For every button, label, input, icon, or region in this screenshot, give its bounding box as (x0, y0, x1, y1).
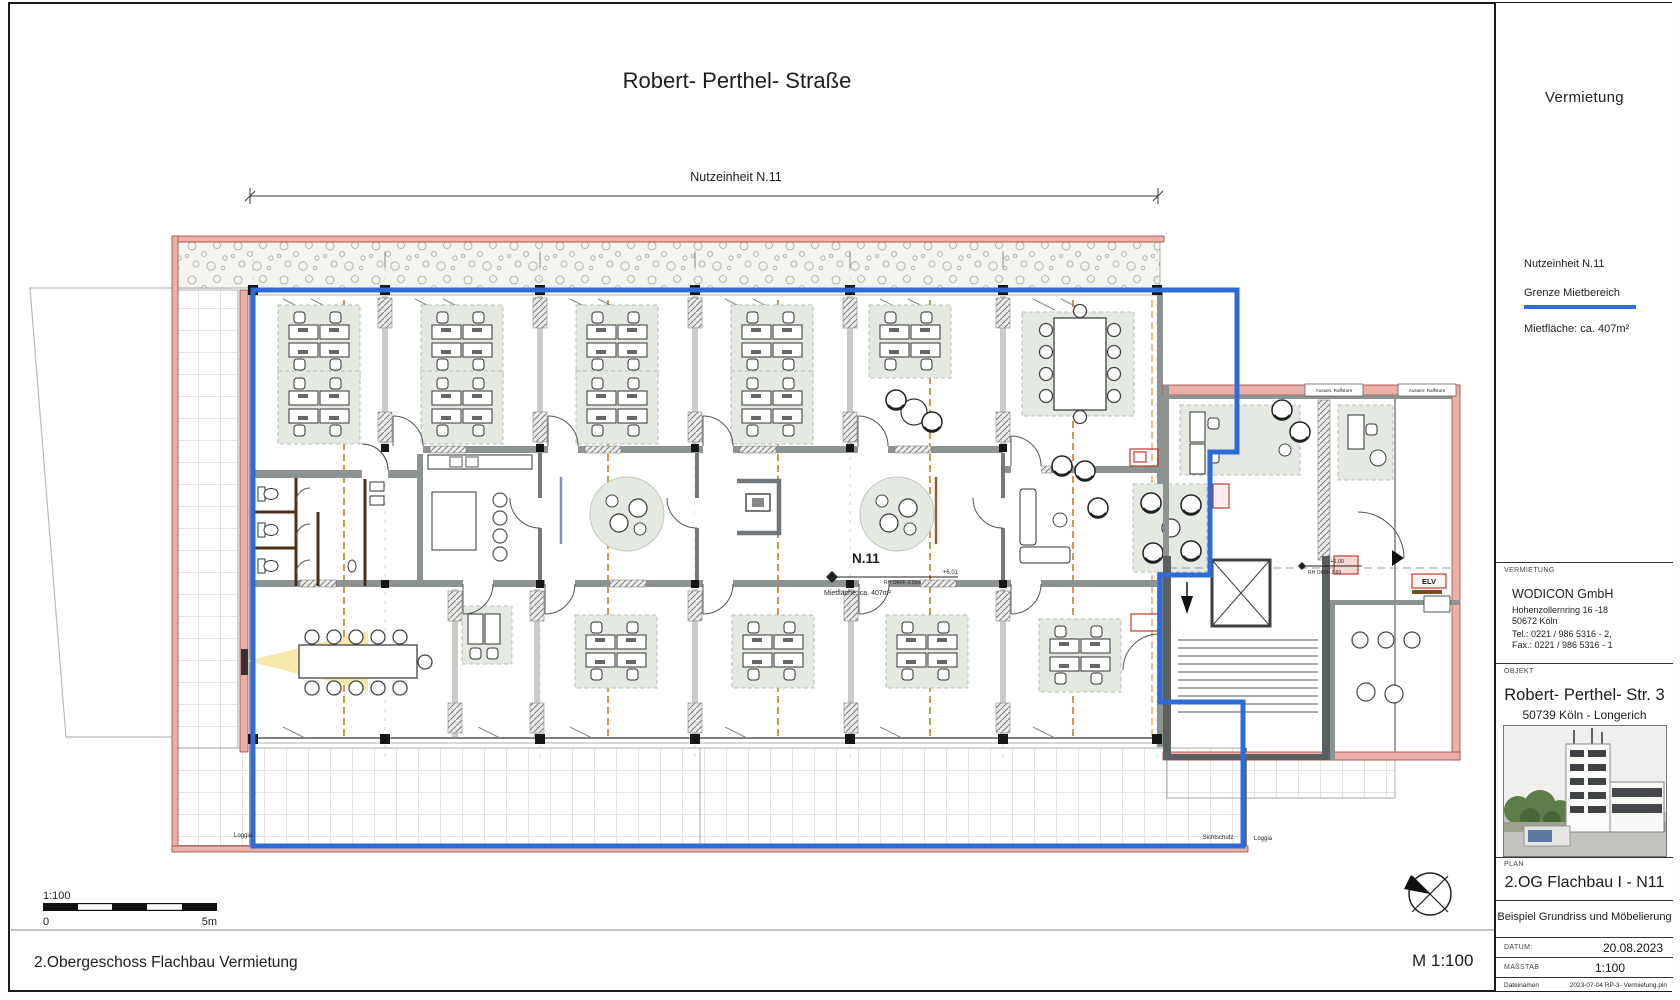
legend-boundary: Grenze Mietbereich (1524, 287, 1620, 299)
plan-subtitle: Beispiel Grundriss und Möbelierung (1496, 911, 1673, 923)
drawing-sheet: Robert- Perthel- Straße Nutzeinheit N.11… (0, 0, 1680, 1000)
building-render-graphic (1504, 726, 1666, 856)
dimension-label: Nutzeinheit N.11 (690, 170, 782, 184)
scalebar-ratio: 1:100 (43, 890, 71, 902)
divider (1496, 977, 1673, 978)
file-label: Dateinamen (1504, 982, 1539, 989)
objekt-city: 50739 Köln - Longerich (1496, 708, 1673, 722)
area-note: Mietfläche: ca. 407m² (824, 590, 892, 597)
loggia-left-label: Loggia (234, 833, 253, 839)
legend-area: Mietfläche: ca. 407m² (1524, 323, 1629, 335)
scale-bar (43, 903, 217, 911)
stair-elevation-value: +6,00 (1330, 559, 1344, 565)
divider (1496, 562, 1673, 563)
title-block: Vermietung Nutzeinheit N.11 Grenze Mietb… (1494, 3, 1673, 991)
date-label: DATUM: (1504, 944, 1533, 951)
plan-name: 2.OG Flachbau I - N11 (1496, 874, 1673, 892)
floor-plan-canvas: Robert- Perthel- Straße Nutzeinheit N.11… (0, 0, 1680, 1000)
vermietung-company: WODICON GmbH (1512, 587, 1613, 601)
objekt-name: Robert- Perthel- Str. 3 (1496, 686, 1673, 705)
street-title: Robert- Perthel- Straße (623, 68, 852, 93)
objekt-section-label: OBJEKT (1504, 668, 1534, 675)
vermietung-tel: Tel.: 0221 / 986 5316 - 2, (1512, 629, 1612, 639)
titleblock-header: Vermietung (1496, 89, 1673, 106)
scale-label: MAßSTAB (1504, 964, 1539, 971)
scale-value: 1:100 (1595, 961, 1625, 975)
scalebar-start: 0 (43, 916, 49, 928)
legend-boundary-line (1524, 305, 1636, 309)
file-value: 2023-07-04 RP-3- Vermietung.pln (1570, 982, 1667, 989)
divider (1496, 663, 1673, 664)
plan-section-label: PLAN (1504, 861, 1524, 868)
divider (1496, 900, 1673, 901)
stair-elevation-sub: RH OKFF 2,69 (1308, 570, 1341, 576)
raffstore-label-1: Aussen. Raffstore (1316, 388, 1353, 393)
loggia-right-label: Loggia (1254, 836, 1273, 842)
divider (1496, 937, 1673, 938)
gravel-strip (176, 242, 1160, 288)
vermietung-city: 50672 Köln (1512, 616, 1558, 626)
elv-label: ELV (1422, 577, 1436, 586)
vermietung-fax: Fax.: 0221 / 986 5316 - 1 (1512, 640, 1613, 650)
sheet-scale-note: M 1:100 (1412, 951, 1473, 970)
unit-label: N.11 (852, 551, 880, 566)
sichtschutz-label: Sichtschutz (1203, 835, 1234, 841)
divider (1496, 957, 1673, 958)
building-render-image (1503, 725, 1667, 857)
elevation-value: +6,01 (943, 570, 959, 576)
raffstore-label-2: Aussen. Raffstore (1409, 388, 1446, 393)
divider (1496, 857, 1673, 858)
vermietung-section-label: VERMIETUNG (1504, 567, 1555, 574)
vermietung-street: Hohenzollernring 16 -18 (1512, 605, 1608, 615)
elevation-sub: RH OKFF 3,16m (884, 580, 921, 586)
sheet-caption: 2.Obergeschoss Flachbau Vermietung (34, 954, 298, 971)
scalebar-end: 5m (202, 916, 217, 928)
legend-unit: Nutzeinheit N.11 (1524, 258, 1605, 270)
date-value: 20.08.2023 (1603, 941, 1663, 955)
